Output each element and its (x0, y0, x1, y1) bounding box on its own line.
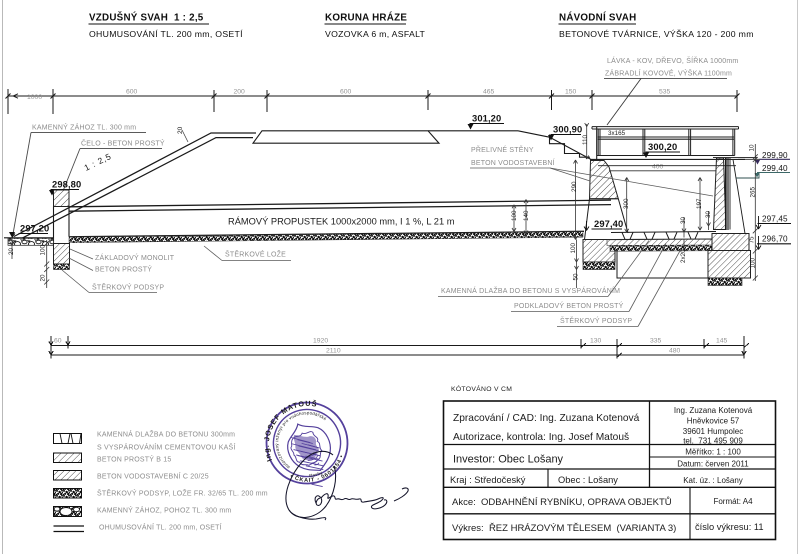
svg-text:100: 100 (511, 210, 518, 221)
svg-text:299,90: 299,90 (762, 151, 788, 160)
svg-text:RÁMOVÝ PROPUSTEK 1000x2000 mm,: RÁMOVÝ PROPUSTEK 1000x2000 mm, I 1 %, L … (228, 217, 455, 227)
svg-text:600: 600 (126, 89, 138, 96)
svg-text:ŠTĚRKOVÝ PODSYP: ŠTĚRKOVÝ PODSYP (560, 316, 632, 325)
svg-text:100: 100 (40, 244, 47, 255)
svg-text:535: 535 (659, 89, 671, 96)
svg-text:297,40: 297,40 (594, 218, 623, 229)
svg-text:OHUMUSOVÁNÍ TL. 200 mm, OSETÍ: OHUMUSOVÁNÍ TL. 200 mm, OSETÍ (99, 523, 222, 532)
svg-text:BETONOVÉ TVÁRNICE, VÝŠKA 120 -: BETONOVÉ TVÁRNICE, VÝŠKA 120 - 200 mm (559, 29, 754, 39)
svg-text:ŠTĚRKOVÝ PODSYP, LOŽE FR. 32/6: ŠTĚRKOVÝ PODSYP, LOŽE FR. 32/65 TL. 200 … (97, 489, 268, 498)
svg-text:OHUMUSOVÁNÍ TL. 200 mm, OSETÍ: OHUMUSOVÁNÍ TL. 200 mm, OSETÍ (89, 29, 243, 39)
svg-text:265: 265 (750, 186, 757, 197)
svg-text:VOZOVKA 6 m, ASFALT: VOZOVKA 6 m, ASFALT (325, 29, 426, 39)
svg-text:20: 20 (8, 247, 15, 255)
svg-text:Kat. úz. : Lošany: Kat. úz. : Lošany (683, 476, 743, 485)
svg-text:číslo výkresu: 11: číslo výkresu: 11 (695, 522, 764, 532)
svg-text:20: 20 (177, 126, 184, 134)
svg-text:Obec : Lošany: Obec : Lošany (558, 475, 618, 485)
svg-text:KAMENNÁ DLAŽBA DO BETONU S VYS: KAMENNÁ DLAŽBA DO BETONU S VYSPÁROVÁNÍM (441, 286, 620, 295)
svg-text:39601 Humpolec: 39601 Humpolec (683, 427, 743, 436)
svg-text:KAMENNÝ ZÁHOZ TL. 300 mm: KAMENNÝ ZÁHOZ TL. 300 mm (32, 123, 136, 132)
svg-text:10: 10 (749, 144, 756, 152)
svg-text:ZÁKLADOVÝ MONOLIT: ZÁKLADOVÝ MONOLIT (95, 253, 175, 262)
svg-text:LÁVKA - KOV, DŘEVO, ŠÍŘKA 1000: LÁVKA - KOV, DŘEVO, ŠÍŘKA 1000mm (607, 56, 738, 65)
svg-text:145: 145 (716, 338, 728, 345)
svg-text:Investor: Obec Lošany: Investor: Obec Lošany (453, 454, 564, 466)
svg-text:290: 290 (571, 181, 578, 192)
svg-text:20: 20 (40, 274, 47, 282)
svg-text:300,20: 300,20 (648, 141, 677, 152)
svg-text:100: 100 (750, 257, 757, 268)
svg-text:Formát: A4: Formát: A4 (713, 497, 753, 506)
svg-text:KAMENNÁ DLAŽBA DO BETONU 300mm: KAMENNÁ DLAŽBA DO BETONU 300mm (97, 430, 235, 439)
svg-text:Výkres: ŘEZ HRÁZOVÝM TĚLESEM: Výkres: ŘEZ HRÁZOVÝM TĚLESEM (VARIANTA 3… (452, 523, 676, 534)
svg-text:600: 600 (340, 89, 352, 96)
svg-text:335: 335 (650, 338, 662, 345)
svg-text:Datum: červen 2011: Datum: červen 2011 (677, 460, 749, 469)
svg-text:KORUNA HRÁZE: KORUNA HRÁZE (325, 12, 407, 24)
svg-text:ČELO - BETON PROSTÝ: ČELO - BETON PROSTÝ (81, 139, 165, 148)
svg-text:Autorizace, kontrola: Ing. Jos: Autorizace, kontrola: Ing. Josef Matouš (453, 432, 629, 443)
svg-text:KAMENNÝ ZÁHOZ, POHOZ TL. 300 m: KAMENNÝ ZÁHOZ, POHOZ TL. 300 mm (97, 506, 231, 515)
svg-text:BETON VODOSTAVEBNÍ: BETON VODOSTAVEBNÍ (471, 158, 555, 167)
svg-text:465: 465 (483, 89, 495, 96)
svg-text:197: 197 (696, 198, 703, 209)
svg-text:60: 60 (54, 338, 62, 345)
svg-text:3x165: 3x165 (608, 130, 626, 137)
svg-text:297,45: 297,45 (762, 215, 788, 224)
svg-text:BETON PROSTÝ: BETON PROSTÝ (95, 265, 152, 274)
svg-text:Ing. Zuzana Kotenová: Ing. Zuzana Kotenová (674, 406, 753, 415)
svg-text:Měřítko: 1 : 100: Měřítko: 1 : 100 (685, 448, 741, 457)
svg-text:1000: 1000 (27, 94, 42, 101)
svg-text:PODKLADOVÝ BETON PROSTÝ: PODKLADOVÝ BETON PROSTÝ (514, 301, 624, 310)
svg-text:BETON PROSTÝ B 15: BETON PROSTÝ B 15 (97, 455, 171, 464)
svg-text:KÓTOVÁNO V CM: KÓTOVÁNO V CM (451, 384, 512, 393)
svg-text:130: 130 (590, 338, 602, 345)
svg-text:ZÁBRADLÍ KOVOVÉ, VÝŠKA 1100mm: ZÁBRADLÍ KOVOVÉ, VÝŠKA 1100mm (605, 69, 732, 78)
svg-text:1920: 1920 (313, 338, 328, 345)
svg-text:100: 100 (570, 242, 577, 253)
svg-text:S VYSPÁROVÁNÍM CEMENTOVOU KAŠÍ: S VYSPÁROVÁNÍM CEMENTOVOU KAŠÍ (97, 443, 236, 452)
svg-text:300: 300 (623, 198, 630, 209)
svg-text:301,20: 301,20 (472, 113, 501, 124)
svg-text:110: 110 (582, 134, 589, 145)
svg-text:298,80: 298,80 (52, 179, 81, 190)
svg-text:tel. 731 495 909: tel. 731 495 909 (683, 437, 743, 446)
svg-text:2110: 2110 (326, 348, 341, 355)
svg-text:50: 50 (573, 273, 580, 281)
svg-text:30: 30 (680, 216, 687, 224)
svg-text:Akce: ODBAHNĚNÍ RYBNÍKU, OPRA: Akce: ODBAHNĚNÍ RYBNÍKU, OPRAVA OBJEKTŮ (452, 496, 672, 508)
svg-text:150: 150 (565, 89, 577, 96)
svg-text:NÁVODNÍ SVAH: NÁVODNÍ SVAH (559, 12, 636, 24)
svg-text:2x20: 2x20 (680, 249, 687, 263)
svg-text:75: 75 (749, 236, 756, 244)
svg-text:300,90: 300,90 (553, 124, 582, 135)
svg-text:400: 400 (652, 164, 664, 171)
svg-text:PŘELIVNÉ STĚNY: PŘELIVNÉ STĚNY (471, 145, 534, 154)
svg-text:296,70: 296,70 (762, 235, 788, 244)
svg-text:140: 140 (523, 210, 530, 221)
svg-text:Hněvkovice 57: Hněvkovice 57 (687, 417, 740, 426)
svg-text:297,20: 297,20 (20, 223, 49, 234)
svg-text:30: 30 (705, 210, 712, 218)
svg-text:ŠTĚRKOVÝ PODSYP: ŠTĚRKOVÝ PODSYP (92, 283, 164, 292)
svg-text:BETON VODOSTAVEBNÍ C 20/25: BETON VODOSTAVEBNÍ C 20/25 (97, 472, 209, 481)
svg-text:Zpracování / CAD: Ing. Zuzana: Zpracování / CAD: Ing. Zuzana Kotenová (453, 413, 640, 424)
svg-text:VZDUŠNÝ SVAH 1 : 2,5: VZDUŠNÝ SVAH 1 : 2,5 (89, 12, 204, 24)
svg-text:ŠTĚRKOVÉ LOŽE: ŠTĚRKOVÉ LOŽE (225, 250, 286, 259)
svg-text:Kraj : Středočeský: Kraj : Středočeský (450, 475, 526, 485)
svg-text:200: 200 (234, 89, 246, 96)
svg-text:480: 480 (669, 348, 681, 355)
svg-text:299,40: 299,40 (762, 164, 788, 173)
